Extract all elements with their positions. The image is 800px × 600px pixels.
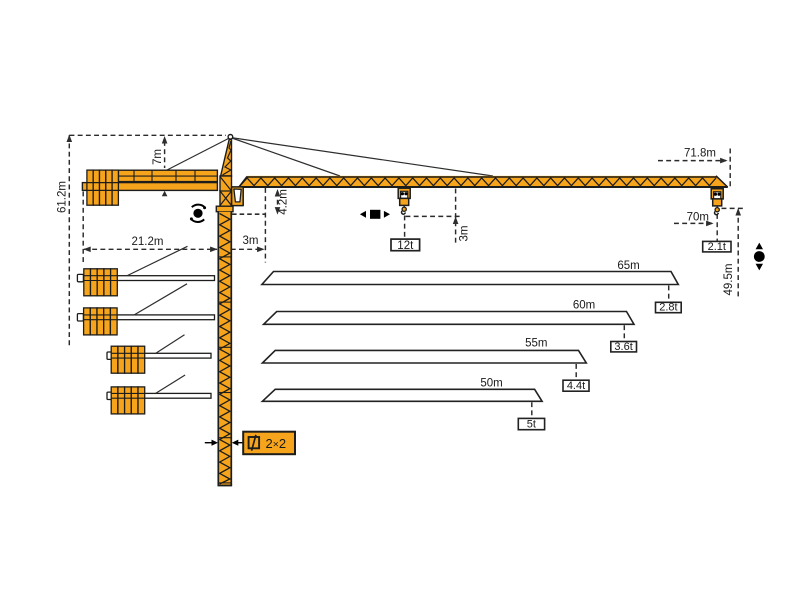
svg-text:49.5m: 49.5m <box>723 264 735 296</box>
svg-text:71.8m: 71.8m <box>684 148 716 160</box>
svg-text:65m: 65m <box>617 260 639 272</box>
svg-text:61.2m: 61.2m <box>56 181 68 213</box>
svg-text:70m: 70m <box>687 211 709 223</box>
svg-text:3.6t: 3.6t <box>614 341 632 353</box>
svg-text:60m: 60m <box>573 299 595 311</box>
svg-text:3m: 3m <box>459 226 471 242</box>
svg-text:3m: 3m <box>243 235 259 247</box>
svg-text:4.2m: 4.2m <box>278 189 290 215</box>
svg-text:2×2: 2×2 <box>266 436 287 451</box>
svg-text:2.1t: 2.1t <box>708 241 726 253</box>
svg-text:55m: 55m <box>525 337 547 349</box>
svg-text:12t: 12t <box>397 240 414 252</box>
svg-text:2.8t: 2.8t <box>659 302 677 314</box>
svg-text:50m: 50m <box>480 377 502 389</box>
svg-text:5t: 5t <box>527 419 536 431</box>
svg-text:4.4t: 4.4t <box>567 380 585 392</box>
svg-text:7m: 7m <box>152 149 164 165</box>
svg-text:21.2m: 21.2m <box>132 236 164 248</box>
